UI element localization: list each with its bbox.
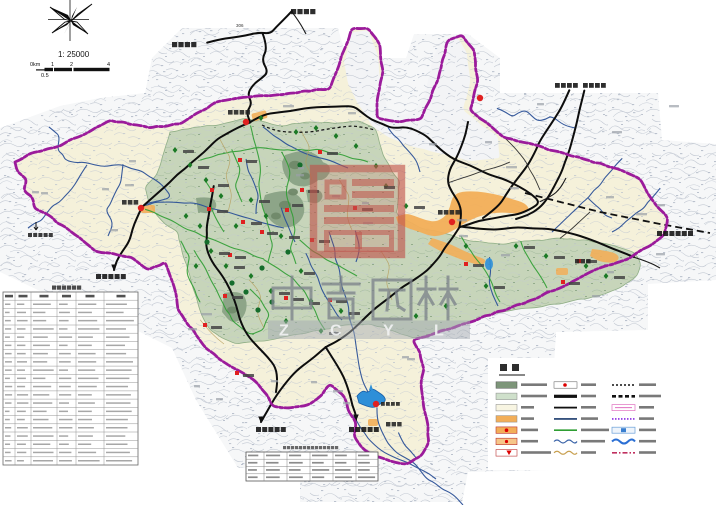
svg-text:0km: 0km [30, 62, 41, 68]
svg-text:C: C [330, 323, 342, 340]
svg-text:306: 306 [236, 23, 244, 28]
svg-text:Z: Z [279, 323, 289, 340]
svg-text:2: 2 [70, 62, 73, 68]
svg-text:1: 1 [51, 62, 54, 68]
svg-text:1: 25000: 1: 25000 [58, 50, 90, 59]
svg-text:L: L [434, 323, 444, 340]
svg-text:0.5: 0.5 [41, 73, 49, 79]
svg-text:Y: Y [383, 323, 394, 340]
svg-text:4: 4 [107, 62, 110, 68]
